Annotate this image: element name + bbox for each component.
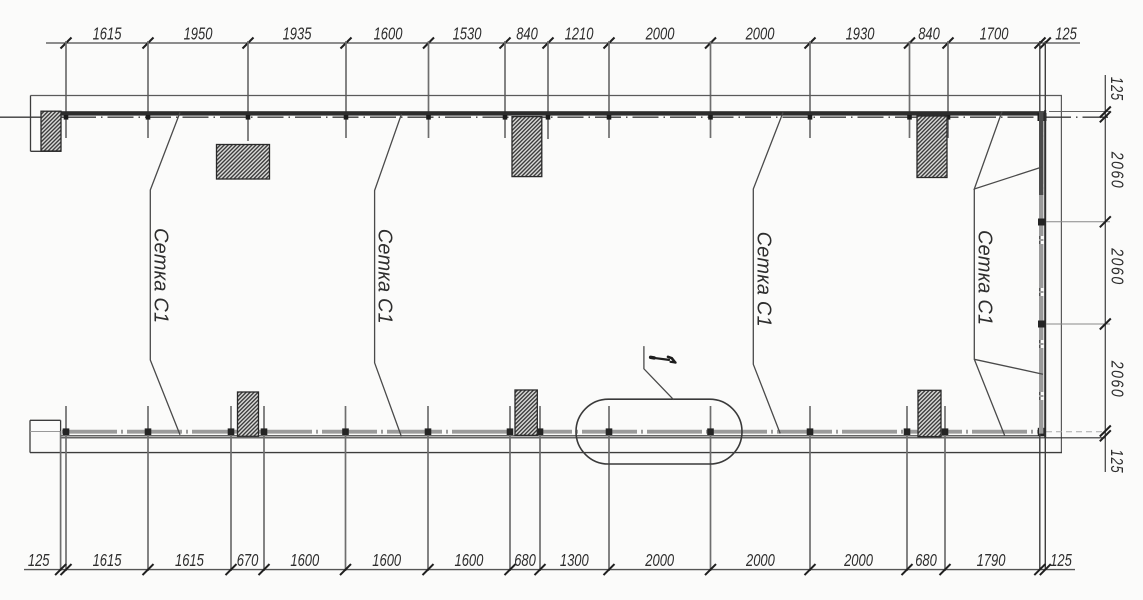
svg-text:1600: 1600 — [374, 25, 403, 45]
svg-text:1615: 1615 — [93, 25, 122, 45]
svg-text:Сетка С1: Сетка С1 — [374, 229, 396, 324]
svg-text:125: 125 — [1050, 551, 1072, 571]
svg-text:2000: 2000 — [745, 551, 775, 571]
svg-text:680: 680 — [514, 551, 536, 571]
svg-text:1615: 1615 — [175, 551, 204, 571]
svg-text:1600: 1600 — [372, 551, 401, 571]
svg-text:Сетка С1: Сетка С1 — [973, 230, 995, 325]
svg-text:1935: 1935 — [283, 25, 312, 45]
svg-text:125: 125 — [1106, 77, 1126, 101]
svg-text:125: 125 — [1106, 449, 1126, 473]
svg-text:1615: 1615 — [93, 551, 122, 571]
svg-text:Сетка С1: Сетка С1 — [752, 232, 774, 327]
svg-text:2000: 2000 — [745, 25, 775, 45]
svg-text:2000: 2000 — [644, 551, 674, 571]
svg-text:2060: 2060 — [1107, 247, 1127, 285]
svg-text:125: 125 — [1055, 25, 1077, 45]
svg-text:1700: 1700 — [980, 25, 1009, 45]
svg-text:680: 680 — [915, 551, 937, 571]
svg-text:1210: 1210 — [565, 25, 594, 45]
svg-text:1790: 1790 — [977, 551, 1006, 571]
svg-text:840: 840 — [918, 25, 940, 45]
svg-text:1950: 1950 — [184, 25, 213, 45]
svg-text:125: 125 — [28, 551, 50, 571]
svg-text:Сетка С1: Сетка С1 — [149, 228, 171, 323]
svg-text:2000: 2000 — [645, 25, 675, 45]
svg-text:670: 670 — [237, 551, 259, 571]
svg-text:1600: 1600 — [290, 551, 319, 571]
svg-text:2060: 2060 — [1107, 151, 1127, 189]
svg-text:1600: 1600 — [454, 551, 483, 571]
svg-text:1300: 1300 — [560, 551, 589, 571]
svg-text:1930: 1930 — [846, 25, 875, 45]
svg-text:1530: 1530 — [453, 25, 482, 45]
svg-text:2060: 2060 — [1107, 360, 1127, 398]
svg-text:840: 840 — [516, 25, 538, 45]
svg-text:2000: 2000 — [843, 551, 873, 571]
